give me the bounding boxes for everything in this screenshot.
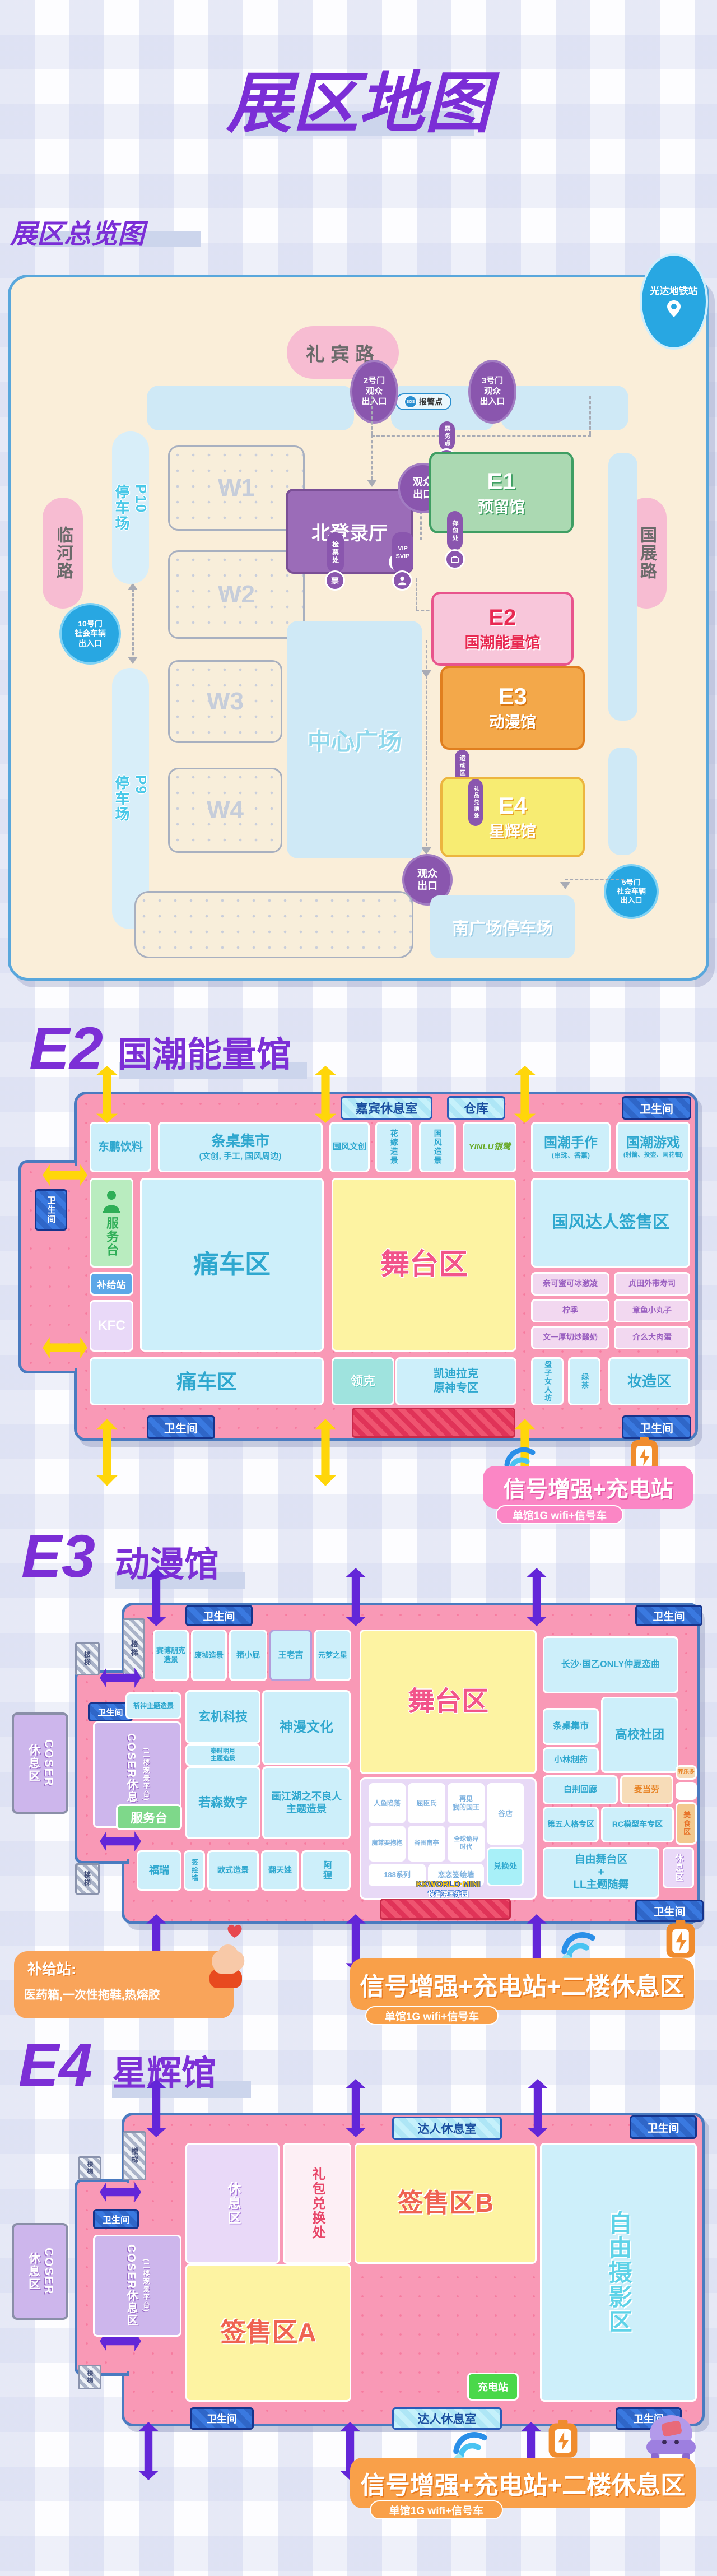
e3-booth-changsha: 长沙·国乙ONLY仲夏恋曲 (543, 1636, 678, 1693)
guide-line (371, 435, 591, 437)
e3-booth-tiaozhuo: 条桌集市 (543, 1708, 599, 1745)
e2-booth-youxi: 国潮游戏 (射箭、投壶、画花钿) (616, 1122, 690, 1172)
e2-booth-dongpeng: 东鹏饮料 (90, 1122, 151, 1172)
bag-icon (445, 549, 465, 569)
e3-free-stage: 自由舞台区 + LL主题随舞 (543, 1847, 659, 1899)
walkway-strip (608, 748, 637, 855)
e2-booth-shouzuo-label: 国潮手作 (544, 1135, 598, 1152)
entrance-arrow (346, 2079, 366, 2137)
e2-supply-station: 补给站 (90, 1272, 133, 1296)
e2-food-stall: 柠季 (531, 1299, 609, 1322)
entrance-arrow (346, 1568, 366, 1626)
e3-booth-zhuxiaopi: 猪小屁 (229, 1630, 267, 1681)
e3-stairs: 楼梯 (75, 1642, 100, 1675)
e2-booth-huajia-label: 花嫁造景 (389, 1129, 399, 1165)
e2-booth-wenchuang: 国风文创 (329, 1122, 370, 1172)
e2-booth-huajia: 花嫁造景 (375, 1122, 412, 1172)
e3-coser-rest-inner-sub: (二楼观景平台) (142, 1748, 151, 1802)
e3-booth-ruosen: 若森数字 (185, 1766, 260, 1839)
e2-section-name: 国潮能量馆 (118, 1038, 291, 1073)
e4-toilet-top-right: 卫生间 (630, 2115, 697, 2139)
vip-pill: VIP SVIP (392, 532, 413, 573)
e2-booth-cadillac: 凯迪拉克 原神专区 (395, 1357, 516, 1405)
e4-charge-station: 充电站 (467, 2373, 519, 2401)
guide-arrow (560, 882, 570, 889)
e2-toilet-left-label: 卫生间 (45, 1196, 57, 1224)
e2-guest-lounge: 嘉宾休息室 (341, 1096, 432, 1120)
hall-e4-name: 星辉馆 (489, 819, 536, 842)
e4-coser-rest-inner-sub: (二楼观景平台) (142, 2259, 151, 2313)
hall-e2-code: E2 (489, 605, 516, 630)
e3-stairs: 楼梯 (123, 1618, 145, 1679)
e2-stage-label: 舞台区 (380, 1247, 468, 1283)
e2-booth-zaojing: 国风造景 (419, 1122, 456, 1172)
walkway-strip (147, 386, 354, 430)
gate-5: 5号门 社会车辆 出入口 (604, 864, 659, 919)
e3-food-zone-label: 美食区 (682, 1811, 691, 1836)
e3-signal-badge: 信号增强+充电站+二楼休息区 (350, 1958, 694, 2010)
parking-p10: P10 停车场 (112, 431, 149, 584)
e4-section-name: 星辉馆 (112, 2057, 216, 2091)
e2-service-desk: 服务台 (90, 1178, 133, 1268)
e3-coser-rest-inner-label: COSER休息区 (123, 1733, 139, 1816)
e3-booth-mozun: 魔尊要抱抱 (369, 1826, 406, 1862)
e3-section-code: E3 (21, 1529, 95, 1583)
stairs-label: 楼梯 (129, 2147, 140, 2164)
stairs-label: 楼梯 (129, 1640, 139, 1657)
hall-e1-code: E1 (487, 468, 515, 495)
person-icon (100, 1189, 123, 1213)
entrance-arrow (528, 2079, 548, 2137)
battery-icon (546, 2419, 580, 2460)
e3-toilet-top-right: 卫生间 (635, 1605, 702, 1626)
e2-booth-shouzuo: 国潮手作 (串珠、香薰) (531, 1122, 611, 1172)
entrance-arrow (138, 2422, 159, 2480)
e3-booth-zhanshen: 斩神主题造景 (125, 1692, 181, 1719)
south-plaza-parking: 南广场停车场 (430, 895, 575, 958)
entrance-arrow (146, 2079, 166, 2137)
e3-booth-guwei: 谷围南亭 (408, 1826, 445, 1862)
e3-booth-ali: 阿狸 (301, 1850, 351, 1891)
e2-tongche-area: 痛车区 (140, 1178, 324, 1352)
e3-booth-qianhui-label: 签绘墙 (190, 1859, 199, 1882)
e4-coser-rest-outer-label: COSER 休息区 (25, 2248, 55, 2295)
hall-e1-name: 预留馆 (478, 495, 525, 517)
sofa-icon (642, 2411, 700, 2462)
e2-section-code: E2 (29, 1021, 103, 1075)
e4-signing-a: 签售区A (185, 2264, 351, 2402)
e3-booth-qinshi: 秦时明月 主题造景 (185, 1744, 260, 1766)
e4-gift-exchange: 礼包兑换处 (283, 2143, 351, 2264)
e3-supply-note-title: 补给站: (27, 1958, 76, 1979)
e3-coser-rest-outer: COSER 休息区 (12, 1712, 68, 1814)
e2-booth-market-sub: (文创, 手工, 国风周边) (199, 1152, 282, 1162)
e2-booth-panzi: 盘子女人坊 (531, 1357, 564, 1405)
e3-toilet-top-left: 卫生间 (185, 1605, 253, 1626)
e2-toilet-top-right: 卫生间 (622, 1096, 691, 1120)
ticket-check-pill: 检票处 (327, 532, 344, 573)
hall-e3-code: E3 (498, 683, 527, 710)
hall-w1: W1 (168, 445, 305, 531)
wifi-icon (444, 2424, 491, 2461)
e2-signal-badge: 信号增强+充电站 (483, 1466, 693, 1509)
e4-photo-area: 自由摄影区 (540, 2143, 697, 2402)
alarm-label: 报警点 (419, 396, 443, 407)
entrance-arrow (146, 1568, 166, 1626)
e4-photo-area-label: 自由摄影区 (604, 2211, 634, 2334)
e3-section-name: 动漫馆 (115, 1548, 219, 1582)
guide-line (416, 578, 417, 610)
hall-e4: E4 星辉馆 (440, 777, 585, 857)
e3-booth-wanglaoji: 王老吉 (269, 1630, 312, 1681)
e3-booth-yakult: 养乐多 (676, 1765, 697, 1780)
e3-food-zone: 美食区 (676, 1802, 697, 1845)
e4-coser-rest-outer: COSER 休息区 (12, 2223, 68, 2320)
entrance-arrow (96, 1419, 118, 1486)
walkway-strip (608, 453, 637, 721)
e4-gift-exchange-label: 礼包兑换处 (309, 2167, 325, 2240)
e3-booth-mcdonalds: 麦当劳 (620, 1775, 673, 1804)
south-dotted-parking (134, 891, 413, 958)
e3-booth-oushi: 欧式造景 (207, 1850, 259, 1891)
entrance-arrow (527, 1568, 547, 1626)
metro-station-bubble: 光达地铁站 (640, 253, 708, 350)
alarm-point: SOS 报警点 (395, 393, 451, 410)
e2-booth-youxi-sub: (射箭、投壶、画花钿) (623, 1152, 683, 1159)
e2-stage-area: 舞台区 (332, 1178, 516, 1352)
e4-stairs: 楼梯 (78, 2156, 101, 2180)
e3-stage-area: 舞台区 (360, 1630, 537, 1774)
guide-line (589, 396, 591, 435)
e2-booth-lvcha-label: 绿茶 (580, 1373, 589, 1390)
e3-booth-baijing: 白荆回廊 (543, 1775, 618, 1804)
e3-small-booth (676, 1782, 697, 1800)
e3-booth-fantianwa: 翻天娃 (261, 1850, 299, 1891)
e2-signal-badge-sub: 单馆1G wifi+信号车 (496, 1505, 623, 1524)
e3-stage-back (380, 1899, 511, 1920)
metro-station-label: 光达地铁站 (650, 285, 698, 297)
hall-w3: W3 (168, 660, 282, 743)
e3-booth-ruins: 废墟造景 (191, 1630, 227, 1681)
e3-booth-xiaolin: 小林制药 (543, 1747, 599, 1773)
e2-booth-yinlu: YINLU银鹭 (463, 1122, 516, 1172)
e2-booth-zaojing-label: 国风造景 (432, 1129, 443, 1165)
e4-stairs: 楼梯 (123, 2131, 146, 2180)
e2-booth-kfc: KFC (90, 1300, 133, 1352)
kkworld-logo-line2: 悦看漫画乐园 (360, 1889, 537, 1899)
e3-booth-furui: 福瑞 (137, 1850, 181, 1891)
e2-food-stall: 介么大肉蛋 (614, 1326, 690, 1349)
e2-booth-market-label: 条桌集市 (211, 1132, 269, 1150)
gift-exchange-pill: 礼品兑换处 (468, 779, 483, 826)
hall-e2-name: 国潮能量馆 (465, 630, 541, 652)
e2-food-stall: 章鱼小丸子 (614, 1299, 690, 1322)
e4-rest-area-label: 休息区 (224, 2182, 241, 2225)
e3-stage-label: 舞台区 (408, 1685, 488, 1719)
e2-signing-area: 国风达人签售区 (531, 1178, 690, 1268)
entrance-arrow (315, 1419, 336, 1486)
e4-signal-badge-sub: 单馆1G wifi+信号车 (370, 2500, 503, 2519)
guide-arrow (128, 657, 138, 664)
e2-warehouse: 仓库 (447, 1096, 505, 1120)
e4-signing-a-label: 签售区A (220, 2317, 316, 2349)
e2-booth-lynk: 领克 (332, 1357, 394, 1405)
hall-w4: W4 (168, 768, 282, 853)
wifi-icon (552, 1924, 599, 1961)
e2-booth-lvcha: 绿茶 (568, 1357, 600, 1405)
e4-signing-b-label: 签售区B (398, 2187, 493, 2220)
parking-p9: P9 停车场 (112, 668, 149, 929)
e3-coser-rest-outer-label: COSER 休息区 (25, 1739, 55, 1787)
e4-coser-rest-inner-label: COSER休息区 (123, 2244, 139, 2327)
center-plaza: 中心广场 (287, 621, 422, 858)
e4-signing-b: 签售区B (355, 2143, 537, 2264)
stairs-label: 楼梯 (85, 2370, 94, 2384)
e3-booth-gudian: 谷店 (487, 1783, 524, 1845)
e3-supply-note-body: 医药箱,一次性拖鞋,热熔胶 (24, 1986, 160, 2003)
ticket-point-pill: 票务点 (439, 421, 455, 451)
walkway-strip (501, 386, 628, 430)
south-plaza-parking-label: 南广场停车场 (452, 915, 553, 939)
hall-e3-name: 动漫馆 (489, 710, 536, 732)
stairs-label: 楼梯 (85, 2161, 94, 2175)
thumbs-up-icon (199, 1937, 251, 1995)
e3-booth-shenman: 神漫文化 (262, 1690, 351, 1765)
map-patch (71, 1166, 81, 1368)
e3-booth-ali-label: 阿狸 (320, 1860, 332, 1881)
e2-booth-shouzuo-sub: (串珠、香薰) (552, 1152, 590, 1160)
e3-booth-gaoxiao: 高校社团 (601, 1697, 678, 1773)
e3-rest-area-label: 休息区 (673, 1854, 684, 1882)
e3-rest-area: 休息区 (663, 1847, 694, 1888)
e2-makeup-area: 妆造区 (608, 1357, 690, 1405)
e3-signal-badge-sub: 单馆1G wifi+信号车 (365, 2006, 499, 2025)
e4-coser-rest-inner: COSER休息区 (二楼观景平台) (93, 2235, 181, 2337)
gate-10: 10号门 社会车辆 出入口 (59, 603, 121, 665)
stairs-label: 楼梯 (83, 1871, 92, 1887)
e2-service-desk-label: 服务台 (103, 1217, 120, 1257)
e4-daren-lounge-top: 达人休息室 (392, 2117, 502, 2140)
e2-stage-back (352, 1408, 515, 1438)
e3-booth-huajianghu: 画江湖之不良人 主题造景 (262, 1766, 351, 1839)
page-title: 展区地图 (0, 49, 717, 145)
sos-icon: SOS (404, 396, 417, 408)
e2-booth-panzi-label: 盘子女人坊 (543, 1361, 552, 1403)
hall-e3: E3 动漫馆 (440, 666, 585, 750)
e2-food-stall: 文一厚切炒酸奶 (531, 1326, 609, 1349)
guide-line (565, 879, 624, 880)
e3-booth-xuanji: 玄机科技 (185, 1690, 260, 1744)
e3-booth-quchenshi: 屈臣氏 (408, 1783, 445, 1823)
battery-icon (664, 1919, 697, 1960)
e3-booth-renyu: 人鱼陷落 (369, 1783, 406, 1823)
kkworld-logo-line1: KKWORLD·MINI (360, 1879, 537, 1889)
person-icon (392, 570, 412, 591)
guide-line (371, 435, 373, 480)
e2-food-stall: 贞田外带寿司 (614, 1272, 690, 1296)
guide-line (132, 588, 134, 660)
e2-food-stall: 亲可蜜可冰激凌 (531, 1272, 609, 1296)
hall-w2: W2 (168, 550, 305, 639)
e3-booth-qianhui: 签绘墙 (184, 1850, 205, 1891)
hall-e4-code: E4 (498, 792, 527, 819)
e3-stairs: 楼梯 (75, 1863, 100, 1895)
guide-arrow (367, 480, 377, 487)
kkworld-logo: KKWORLD·MINI 悦看漫画乐园 (360, 1879, 537, 1899)
e3-booth-quanqiu: 全球诡异 时代 (448, 1826, 485, 1862)
e3-booth-diwu: 第五人格专区 (543, 1807, 599, 1842)
poster-canvas: 展区地图 展区总览图 光达地铁站 礼宾路 临河路 国展路 SOS 报警点 2号门… (0, 0, 717, 2576)
overview-section-title: 展区总览图 (10, 212, 145, 251)
e4-toilet-bottom-left: 卫生间 (190, 2407, 254, 2430)
guide-arrow (421, 670, 431, 677)
e2-booth-lynk-label: 领克 (351, 1373, 375, 1389)
e3-booth-yuanmeng: 元梦之星 (314, 1630, 351, 1681)
e2-booth-youxi-label: 国潮游戏 (626, 1135, 680, 1152)
e3-booth-rc: RC模型车专区 (601, 1807, 674, 1842)
gate-2: 2号门 观众 出入口 (350, 360, 398, 424)
guide-line (420, 511, 422, 540)
location-pin-icon (667, 300, 681, 318)
stairs-label: 楼梯 (83, 1651, 92, 1667)
guide-line (371, 396, 373, 435)
e3-booth-zaijian: 再见 我的国王 (448, 1783, 485, 1823)
e4-section-code: E4 (18, 2037, 92, 2092)
e4-stairs: 楼梯 (78, 2365, 101, 2389)
hall-e2: E2 国潮能量馆 (431, 592, 574, 666)
ticket-icon: 票 (325, 570, 345, 591)
center-plaza-label: 中心广场 (308, 723, 402, 757)
gate-3: 3号门 观众 出入口 (468, 360, 516, 424)
e4-toilet-left: 卫生间 (93, 2209, 139, 2229)
road-west: 临河路 (43, 498, 83, 609)
e2-tongche-area-2: 痛车区 (90, 1357, 324, 1405)
e2-toilet-left-wing: 卫生间 (35, 1189, 67, 1231)
e4-rest-area: 休息区 (185, 2143, 280, 2264)
e2-toilet-bottom-left: 卫生间 (147, 1415, 215, 1439)
bag-deposit-pill: 存包处 (447, 511, 463, 550)
e3-service-desk: 服务台 (116, 1804, 182, 1830)
e2-booth-market: 条桌集市 (文创, 手工, 国风周边) (158, 1122, 323, 1172)
e3-booth-cyberpunk: 赛博朋克 造景 (153, 1630, 189, 1681)
